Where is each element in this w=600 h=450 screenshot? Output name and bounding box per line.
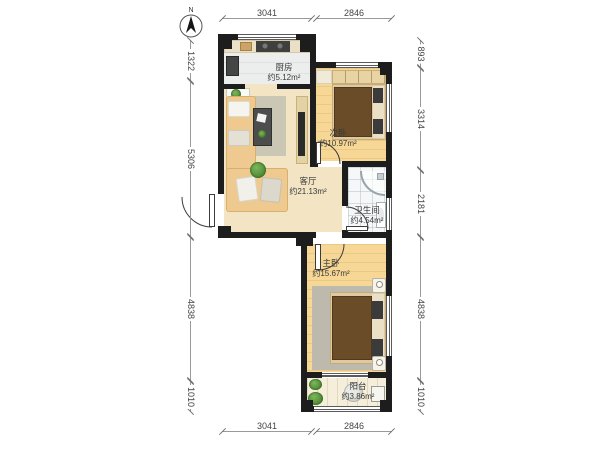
dimension-left-1: 1322 <box>190 40 191 81</box>
dimension-value: 3041 <box>255 421 279 431</box>
room-area: 约5.12m² <box>268 73 301 83</box>
entry-door-arc <box>182 197 212 227</box>
room-name: 卫生间 <box>351 205 384 216</box>
kitchen-label: 厨房 约5.12m² <box>268 62 301 83</box>
dimension-left-2: 5306 <box>190 81 191 237</box>
bedroom2-label: 次卧 约10.97m² <box>319 128 356 149</box>
dimension-value: 4838 <box>186 297 196 321</box>
dimension-value: 1322 <box>186 48 196 72</box>
dimension-value: 2846 <box>342 421 366 431</box>
dimension-value: 3041 <box>255 8 279 18</box>
room-area: 约10.97m² <box>319 139 356 149</box>
room-name: 次卧 <box>319 128 356 139</box>
room-name: 阳台 <box>342 381 375 392</box>
compass-north-label: N <box>188 7 193 14</box>
dimension-right-1: 893 <box>420 40 421 68</box>
dimension-value: 1010 <box>416 384 426 408</box>
room-area: 约15.67m² <box>312 269 349 279</box>
balcony-label: 阳台 约3.86m² <box>342 381 375 402</box>
living-room-label: 客厅 约21.13m² <box>289 176 326 197</box>
master-bedroom-label: 主卧 约15.67m² <box>312 258 349 279</box>
room-name: 厨房 <box>268 62 301 73</box>
room-area: 约4.54m² <box>351 216 384 226</box>
dimension-value: 1010 <box>186 384 196 408</box>
dimension-value: 2846 <box>342 8 366 18</box>
dimension-value: 893 <box>416 44 426 63</box>
dimension-bottom-1: 3041 <box>222 431 312 432</box>
dimension-right-4: 4838 <box>420 237 421 381</box>
dimension-value: 4838 <box>416 297 426 321</box>
floor-plan-canvas: N 厨房 约5.12m² 次卧 约10.97m² 客厅 约21.13m² 卫生间… <box>0 0 600 450</box>
dimension-value: 3314 <box>416 107 426 131</box>
dimension-top-1: 3041 <box>222 18 312 19</box>
dimension-right-3: 2181 <box>420 170 421 237</box>
room-area: 约3.86m² <box>342 392 375 402</box>
bathroom-label: 卫生间 约4.54m² <box>351 205 384 226</box>
dimension-bottom-2: 2846 <box>316 431 392 432</box>
dimension-value: 5306 <box>186 147 196 171</box>
dimension-top-2: 2846 <box>316 18 392 19</box>
compass: N <box>174 4 208 42</box>
dimension-right-5: 1010 <box>420 381 421 412</box>
dimension-left-4: 1010 <box>190 381 191 412</box>
room-name: 客厅 <box>289 176 326 187</box>
room-area: 约21.13m² <box>289 187 326 197</box>
dimension-value: 2181 <box>416 191 426 215</box>
room-name: 主卧 <box>312 258 349 269</box>
dimension-left-3: 4838 <box>190 237 191 381</box>
dimension-right-2: 3314 <box>420 68 421 170</box>
